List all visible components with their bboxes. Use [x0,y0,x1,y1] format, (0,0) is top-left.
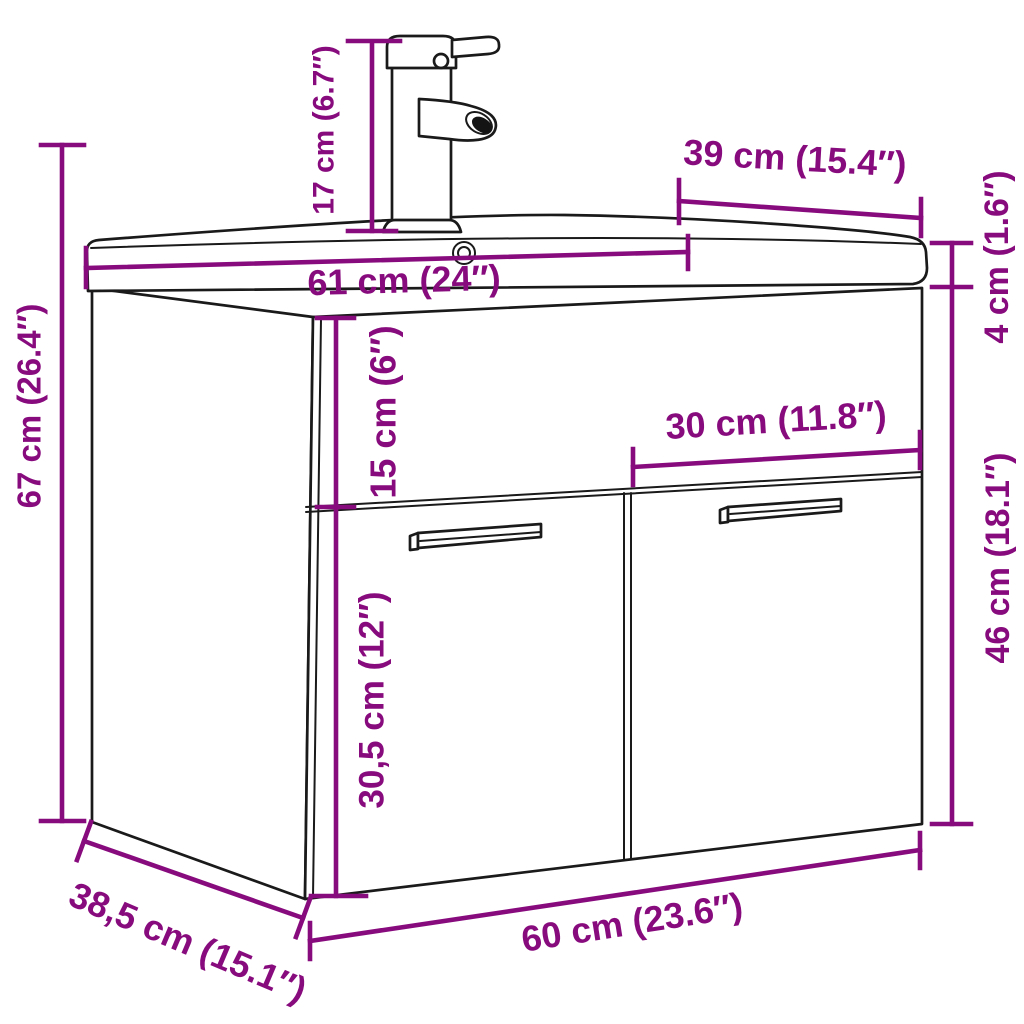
cabinet-side-panel [92,288,313,899]
faucet-height-dimension: 17 cm (6.7″) [308,41,401,231]
dimension-diagram: 17 cm (6.7″) 39 cm (15.4″) 61 cm (24″) 4… [0,0,1024,1024]
sink-body [87,215,927,291]
sink [87,215,927,291]
total-height-dimension: 67 cm (26.4″) [11,145,85,821]
faucet-lever-handle [452,37,499,57]
faucet-screw [434,54,448,68]
dim-label: 60 cm (23.6″) [518,884,745,959]
dim-label: 15 cm (6″) [363,325,404,498]
dim-line [679,201,921,218]
cabinet [92,288,922,899]
diagram-svg: 17 cm (6.7″) 39 cm (15.4″) 61 cm (24″) 4… [0,0,1024,1024]
dim-label: 61 cm (24″) [307,257,501,303]
door-height-dimension: 46 cm (18.1″) [932,287,1017,824]
basin-height-dimension: 4 cm (1.6″) [932,170,1016,343]
dim-label: 17 cm (6.7″) [308,45,341,214]
dim-label: 46 cm (18.1″) [979,453,1017,664]
dim-label: 30,5 cm (12″) [353,591,392,808]
dim-label: 67 cm (26.4″) [11,304,48,509]
dim-label: 39 cm (15.4″) [682,131,907,184]
dim-label: 38,5 cm (15.1″) [63,874,312,1011]
faucet-body [392,66,451,222]
dim-label: 4 cm (1.6″) [978,170,1016,343]
faucet [383,36,499,232]
